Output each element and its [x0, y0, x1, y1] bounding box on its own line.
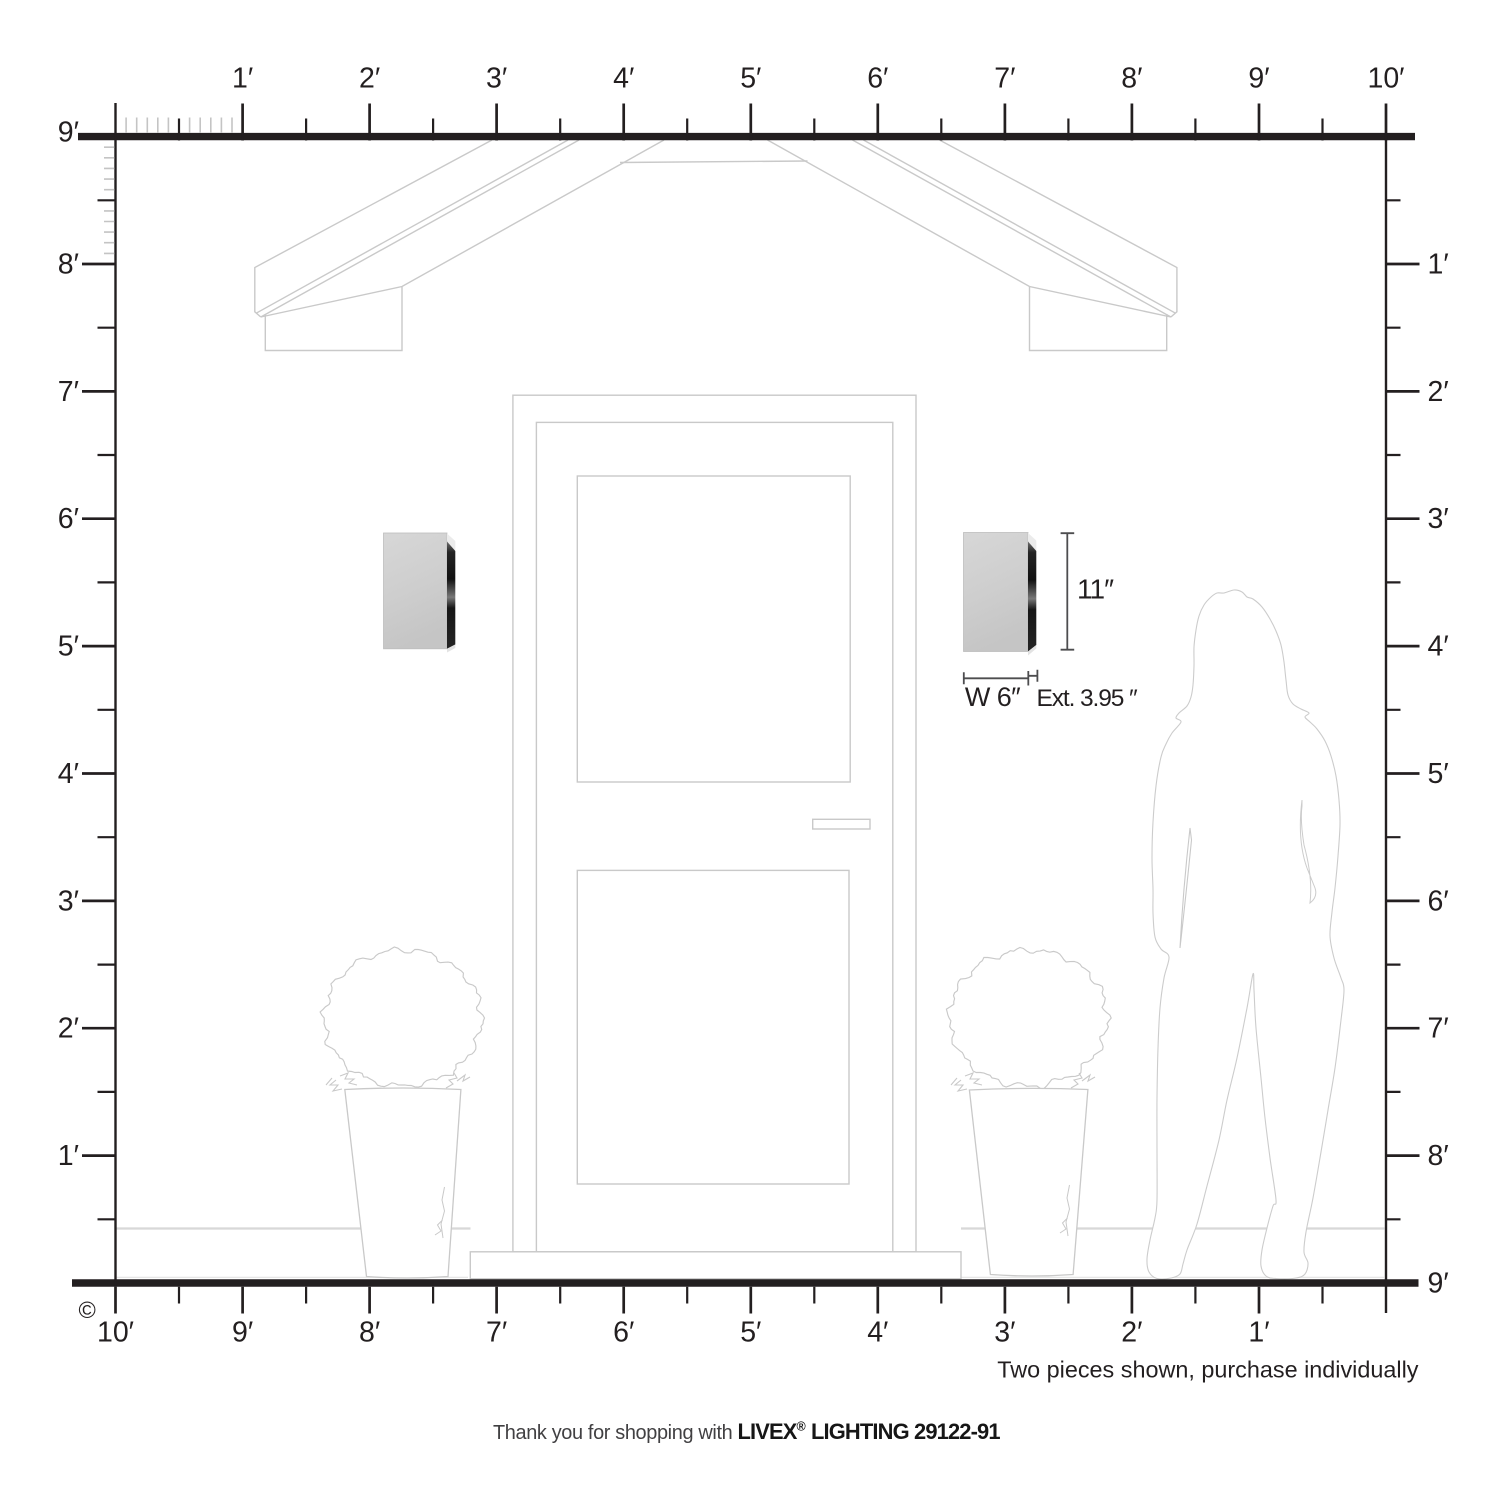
svg-text:7′: 7′	[994, 63, 1015, 95]
svg-text:6′: 6′	[58, 503, 79, 535]
svg-text:3′: 3′	[994, 1317, 1015, 1349]
svg-text:6′: 6′	[613, 1317, 634, 1349]
svg-text:2′: 2′	[359, 63, 380, 95]
svg-text:5′: 5′	[740, 63, 761, 95]
svg-text:7′: 7′	[58, 376, 79, 408]
svg-text:4′: 4′	[58, 758, 79, 790]
svg-text:9′: 9′	[1428, 1268, 1449, 1300]
svg-text:4′: 4′	[1428, 631, 1449, 663]
svg-text:9′: 9′	[1248, 63, 1269, 95]
svg-text:1′: 1′	[232, 63, 253, 95]
svg-text:W 6″: W 6″	[965, 682, 1021, 712]
svg-text:4′: 4′	[867, 1317, 888, 1349]
svg-text:9′: 9′	[232, 1317, 253, 1349]
svg-text:10′: 10′	[97, 1317, 134, 1349]
svg-text:5′: 5′	[740, 1317, 761, 1349]
svg-text:6′: 6′	[867, 63, 888, 95]
svg-text:2′: 2′	[58, 1013, 79, 1045]
svg-text:3′: 3′	[486, 63, 507, 95]
svg-text:7′: 7′	[1428, 1013, 1449, 1045]
svg-text:3′: 3′	[58, 885, 79, 917]
svg-text:Two pieces shown, purchase ind: Two pieces shown, purchase individually	[997, 1357, 1419, 1383]
svg-text:3′: 3′	[1428, 503, 1449, 535]
svg-text:Thank you for shopping with LI: Thank you for shopping with LIVEX® LIGHT…	[493, 1419, 1000, 1444]
svg-text:8′: 8′	[359, 1317, 380, 1349]
svg-text:8′: 8′	[1428, 1140, 1449, 1172]
svg-text:5′: 5′	[1428, 758, 1449, 790]
svg-text:1′: 1′	[58, 1140, 79, 1172]
svg-text:7′: 7′	[486, 1317, 507, 1349]
svg-text:9′: 9′	[58, 117, 79, 149]
svg-text:10′: 10′	[1367, 63, 1404, 95]
svg-text:1′: 1′	[1428, 249, 1449, 281]
svg-text:8′: 8′	[58, 249, 79, 281]
svg-text:6′: 6′	[1428, 885, 1449, 917]
svg-text:5′: 5′	[58, 631, 79, 663]
svg-text:©: ©	[79, 1297, 96, 1323]
svg-text:11″: 11″	[1077, 574, 1114, 605]
svg-text:8′: 8′	[1121, 63, 1142, 95]
svg-text:2′: 2′	[1121, 1317, 1142, 1349]
svg-text:4′: 4′	[613, 63, 634, 95]
svg-text:Ext. 3.95 ″: Ext. 3.95 ″	[1037, 685, 1139, 712]
svg-text:2′: 2′	[1428, 376, 1449, 408]
svg-text:1′: 1′	[1248, 1317, 1269, 1349]
